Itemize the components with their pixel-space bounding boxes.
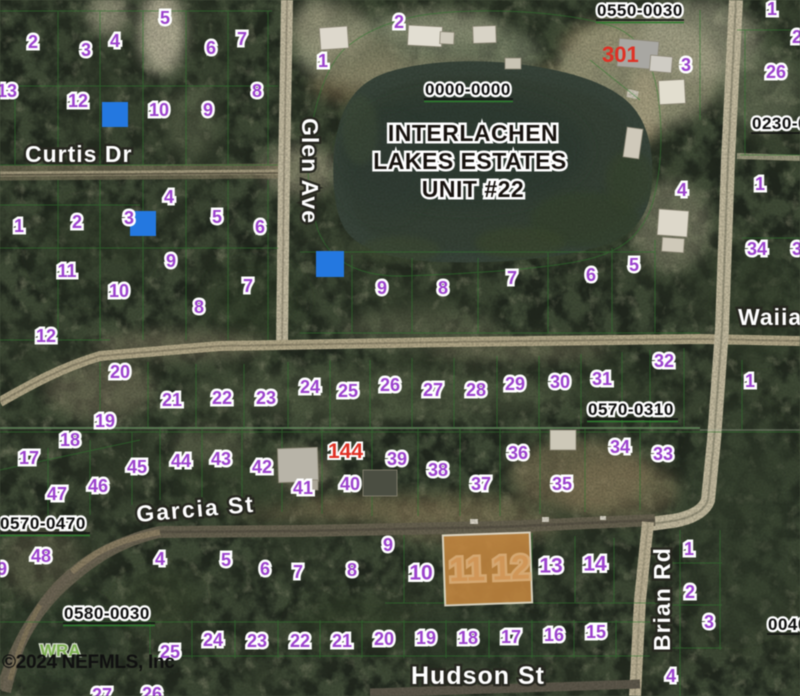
svg-text:19: 19: [95, 411, 115, 431]
svg-text:2: 2: [72, 212, 82, 232]
svg-text:20: 20: [374, 629, 394, 649]
svg-text:17: 17: [19, 448, 39, 468]
svg-text:33: 33: [653, 444, 673, 464]
svg-text:45: 45: [127, 457, 147, 477]
svg-text:7: 7: [243, 276, 253, 296]
svg-text:29: 29: [505, 374, 525, 394]
svg-text:28: 28: [466, 380, 486, 400]
svg-text:1: 1: [755, 174, 765, 194]
svg-text:13: 13: [0, 81, 17, 101]
svg-text:4: 4: [164, 187, 174, 207]
svg-text:24: 24: [203, 630, 223, 650]
svg-text:44: 44: [171, 451, 191, 471]
svg-text:12: 12: [68, 91, 88, 111]
svg-text:21: 21: [332, 631, 352, 651]
svg-text:22: 22: [212, 388, 232, 408]
svg-text:6: 6: [255, 217, 265, 237]
svg-text:4: 4: [155, 549, 165, 569]
svg-text:9: 9: [377, 278, 387, 298]
svg-text:2: 2: [792, 27, 800, 47]
svg-text:32: 32: [654, 351, 674, 371]
svg-text:26: 26: [766, 62, 786, 82]
svg-text:Brian Rd: Brian Rd: [649, 547, 675, 651]
svg-text:0550-0030: 0550-0030: [597, 1, 683, 20]
svg-text:0580-0030: 0580-0030: [64, 604, 150, 623]
svg-text:15: 15: [586, 622, 606, 642]
svg-text:2: 2: [394, 12, 404, 32]
svg-text:7: 7: [237, 29, 247, 49]
svg-text:Curtis Dr: Curtis Dr: [25, 141, 132, 167]
svg-text:27: 27: [423, 380, 443, 400]
svg-text:3: 3: [792, 239, 800, 259]
svg-text:18: 18: [458, 628, 478, 648]
svg-text:144: 144: [328, 440, 363, 463]
svg-text:3: 3: [124, 208, 134, 228]
svg-text:0040: 0040: [768, 615, 800, 634]
svg-text:6: 6: [260, 559, 270, 579]
svg-text:UNIT #22: UNIT #22: [422, 176, 524, 202]
svg-text:42: 42: [252, 457, 272, 477]
svg-text:8: 8: [194, 297, 204, 317]
svg-text:Glen Ave: Glen Ave: [297, 118, 323, 224]
svg-text:3: 3: [681, 55, 691, 75]
svg-text:11: 11: [448, 550, 485, 589]
svg-text:9: 9: [383, 535, 393, 555]
svg-text:14: 14: [583, 553, 607, 576]
svg-text:3: 3: [704, 612, 714, 632]
svg-text:2: 2: [685, 582, 695, 602]
svg-text:48: 48: [31, 546, 51, 566]
svg-text:1: 1: [745, 371, 755, 391]
svg-text:40: 40: [340, 474, 360, 494]
svg-text:36: 36: [508, 443, 528, 463]
svg-text:5: 5: [160, 8, 170, 28]
svg-text:23: 23: [256, 388, 276, 408]
svg-text:0570-0310: 0570-0310: [588, 400, 674, 419]
svg-text:26: 26: [380, 375, 400, 395]
svg-text:INTERLACHEN: INTERLACHEN: [388, 120, 558, 146]
svg-text:6: 6: [586, 265, 596, 285]
svg-text:21: 21: [162, 390, 182, 410]
svg-text:0570-0470: 0570-0470: [0, 514, 86, 533]
svg-text:26: 26: [142, 684, 162, 696]
svg-text:47: 47: [47, 484, 67, 504]
svg-text:41: 41: [293, 478, 313, 498]
svg-text:11: 11: [57, 261, 76, 281]
svg-text:37: 37: [471, 474, 491, 494]
svg-text:9: 9: [203, 100, 213, 120]
svg-text:1: 1: [318, 51, 328, 71]
svg-text:18: 18: [60, 430, 80, 450]
svg-text:30: 30: [550, 372, 570, 392]
svg-text:25: 25: [338, 381, 358, 401]
svg-text:9: 9: [166, 251, 176, 271]
svg-text:35: 35: [552, 474, 572, 494]
svg-text:9: 9: [0, 559, 7, 579]
svg-text:LAKES ESTATES: LAKES ESTATES: [373, 148, 567, 174]
svg-text:16: 16: [544, 625, 564, 645]
svg-text:1: 1: [684, 539, 694, 559]
svg-text:Waiial: Waiial: [738, 304, 800, 330]
svg-text:31: 31: [592, 369, 612, 389]
svg-text:2: 2: [28, 32, 38, 52]
svg-text:6: 6: [206, 38, 216, 58]
svg-text:39: 39: [387, 449, 407, 469]
svg-text:10: 10: [149, 100, 169, 120]
svg-text:17: 17: [501, 627, 521, 647]
svg-text:23: 23: [247, 631, 267, 651]
svg-text:Hudson St: Hudson St: [411, 662, 545, 690]
svg-text:1: 1: [767, 0, 777, 19]
svg-text:43: 43: [211, 449, 231, 469]
svg-text:34: 34: [610, 437, 630, 457]
svg-text:5: 5: [212, 207, 222, 227]
svg-text:12: 12: [491, 549, 530, 588]
svg-text:22: 22: [290, 631, 310, 651]
svg-text:301: 301: [602, 42, 639, 67]
svg-text:10: 10: [409, 562, 432, 585]
svg-text:19: 19: [416, 628, 436, 648]
svg-text:8: 8: [438, 278, 448, 298]
svg-text:10: 10: [109, 281, 129, 301]
svg-text:7: 7: [507, 268, 517, 288]
svg-text:8: 8: [347, 560, 357, 580]
svg-text:12: 12: [36, 326, 56, 346]
svg-text:5: 5: [629, 255, 639, 275]
svg-text:4: 4: [110, 31, 120, 51]
svg-text:4: 4: [677, 180, 687, 200]
svg-text:©2024 NEFMLS, Inc: ©2024 NEFMLS, Inc: [2, 652, 175, 673]
svg-text:27: 27: [92, 685, 112, 696]
svg-text:5: 5: [221, 550, 231, 570]
svg-text:1: 1: [14, 216, 24, 236]
svg-text:3: 3: [81, 40, 91, 60]
svg-text:8: 8: [252, 81, 262, 101]
svg-text:13: 13: [539, 555, 562, 578]
svg-text:7: 7: [293, 562, 303, 582]
svg-text:0230-0: 0230-0: [752, 114, 800, 133]
svg-text:38: 38: [428, 460, 448, 480]
svg-text:24: 24: [300, 377, 320, 397]
svg-text:20: 20: [110, 362, 130, 382]
svg-text:34: 34: [747, 239, 767, 259]
svg-text:4: 4: [666, 666, 676, 686]
svg-text:0000-0000: 0000-0000: [425, 80, 511, 99]
svg-text:46: 46: [88, 476, 108, 496]
